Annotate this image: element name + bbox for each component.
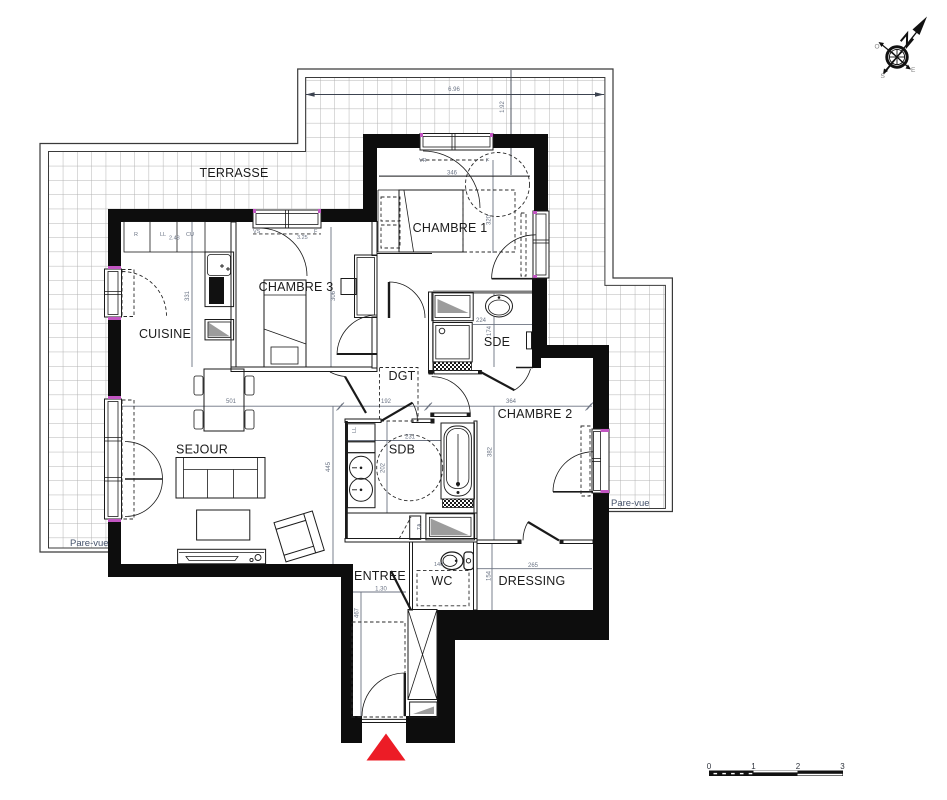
svg-text:192: 192 [381, 399, 392, 405]
svg-text:320: 320 [487, 214, 493, 225]
svg-text:501: 501 [226, 399, 237, 405]
svg-text:DGT: DGT [389, 369, 416, 383]
svg-text:445: 445 [326, 461, 332, 472]
svg-text:382: 382 [488, 446, 494, 457]
svg-text:306: 306 [331, 290, 337, 301]
svg-text:202: 202 [381, 462, 387, 473]
svg-text:S: S [881, 73, 886, 80]
svg-text:CHAMBRE 3: CHAMBRE 3 [259, 280, 334, 294]
svg-text:0: 0 [707, 762, 712, 771]
svg-text:364: 364 [506, 399, 517, 405]
svg-text:DRESSING: DRESSING [499, 574, 566, 588]
svg-text:346: 346 [447, 171, 458, 177]
svg-text:174: 174 [487, 325, 493, 336]
svg-text:224: 224 [476, 318, 487, 324]
svg-text:3: 3 [840, 762, 845, 771]
svg-text:LL: LL [352, 427, 358, 433]
svg-text:E: E [911, 67, 916, 74]
svg-text:CHAMBRE 1: CHAMBRE 1 [413, 221, 488, 235]
svg-text:154: 154 [487, 570, 493, 581]
svg-text:265: 265 [528, 563, 539, 569]
svg-text:O: O [875, 44, 880, 51]
svg-text:6.96: 6.96 [448, 87, 460, 93]
svg-text:1.30: 1.30 [375, 587, 387, 593]
svg-text:R: R [134, 232, 138, 238]
svg-text:Pare-vue: Pare-vue [611, 498, 650, 509]
svg-text:ENTREE: ENTREE [354, 569, 406, 583]
svg-text:467: 467 [355, 607, 361, 618]
svg-text:1.92: 1.92 [500, 101, 506, 113]
svg-text:SDE: SDE [484, 335, 510, 349]
svg-text:2.48: 2.48 [169, 236, 180, 242]
svg-text:140: 140 [434, 562, 443, 568]
svg-text:331: 331 [185, 290, 191, 301]
svg-text:WC: WC [431, 574, 452, 588]
svg-text:1: 1 [751, 762, 756, 771]
svg-text:LL: LL [160, 232, 166, 238]
svg-text:VR: VR [419, 158, 427, 164]
svg-text:SEJOUR: SEJOUR [176, 443, 228, 457]
svg-text:CUISINE: CUISINE [139, 327, 191, 341]
svg-text:VS: VS [253, 229, 261, 235]
svg-text:SDB: SDB [389, 443, 415, 457]
svg-text:TA: TA [417, 523, 423, 530]
svg-text:CHAMBRE 2: CHAMBRE 2 [498, 407, 573, 421]
svg-text:CU: CU [186, 232, 194, 238]
svg-text:TERRASSE: TERRASSE [200, 166, 269, 180]
svg-text:3.25: 3.25 [297, 235, 308, 241]
svg-text:2: 2 [796, 762, 801, 771]
svg-text:231: 231 [405, 435, 416, 441]
svg-text:Pare-vue: Pare-vue [70, 538, 109, 549]
